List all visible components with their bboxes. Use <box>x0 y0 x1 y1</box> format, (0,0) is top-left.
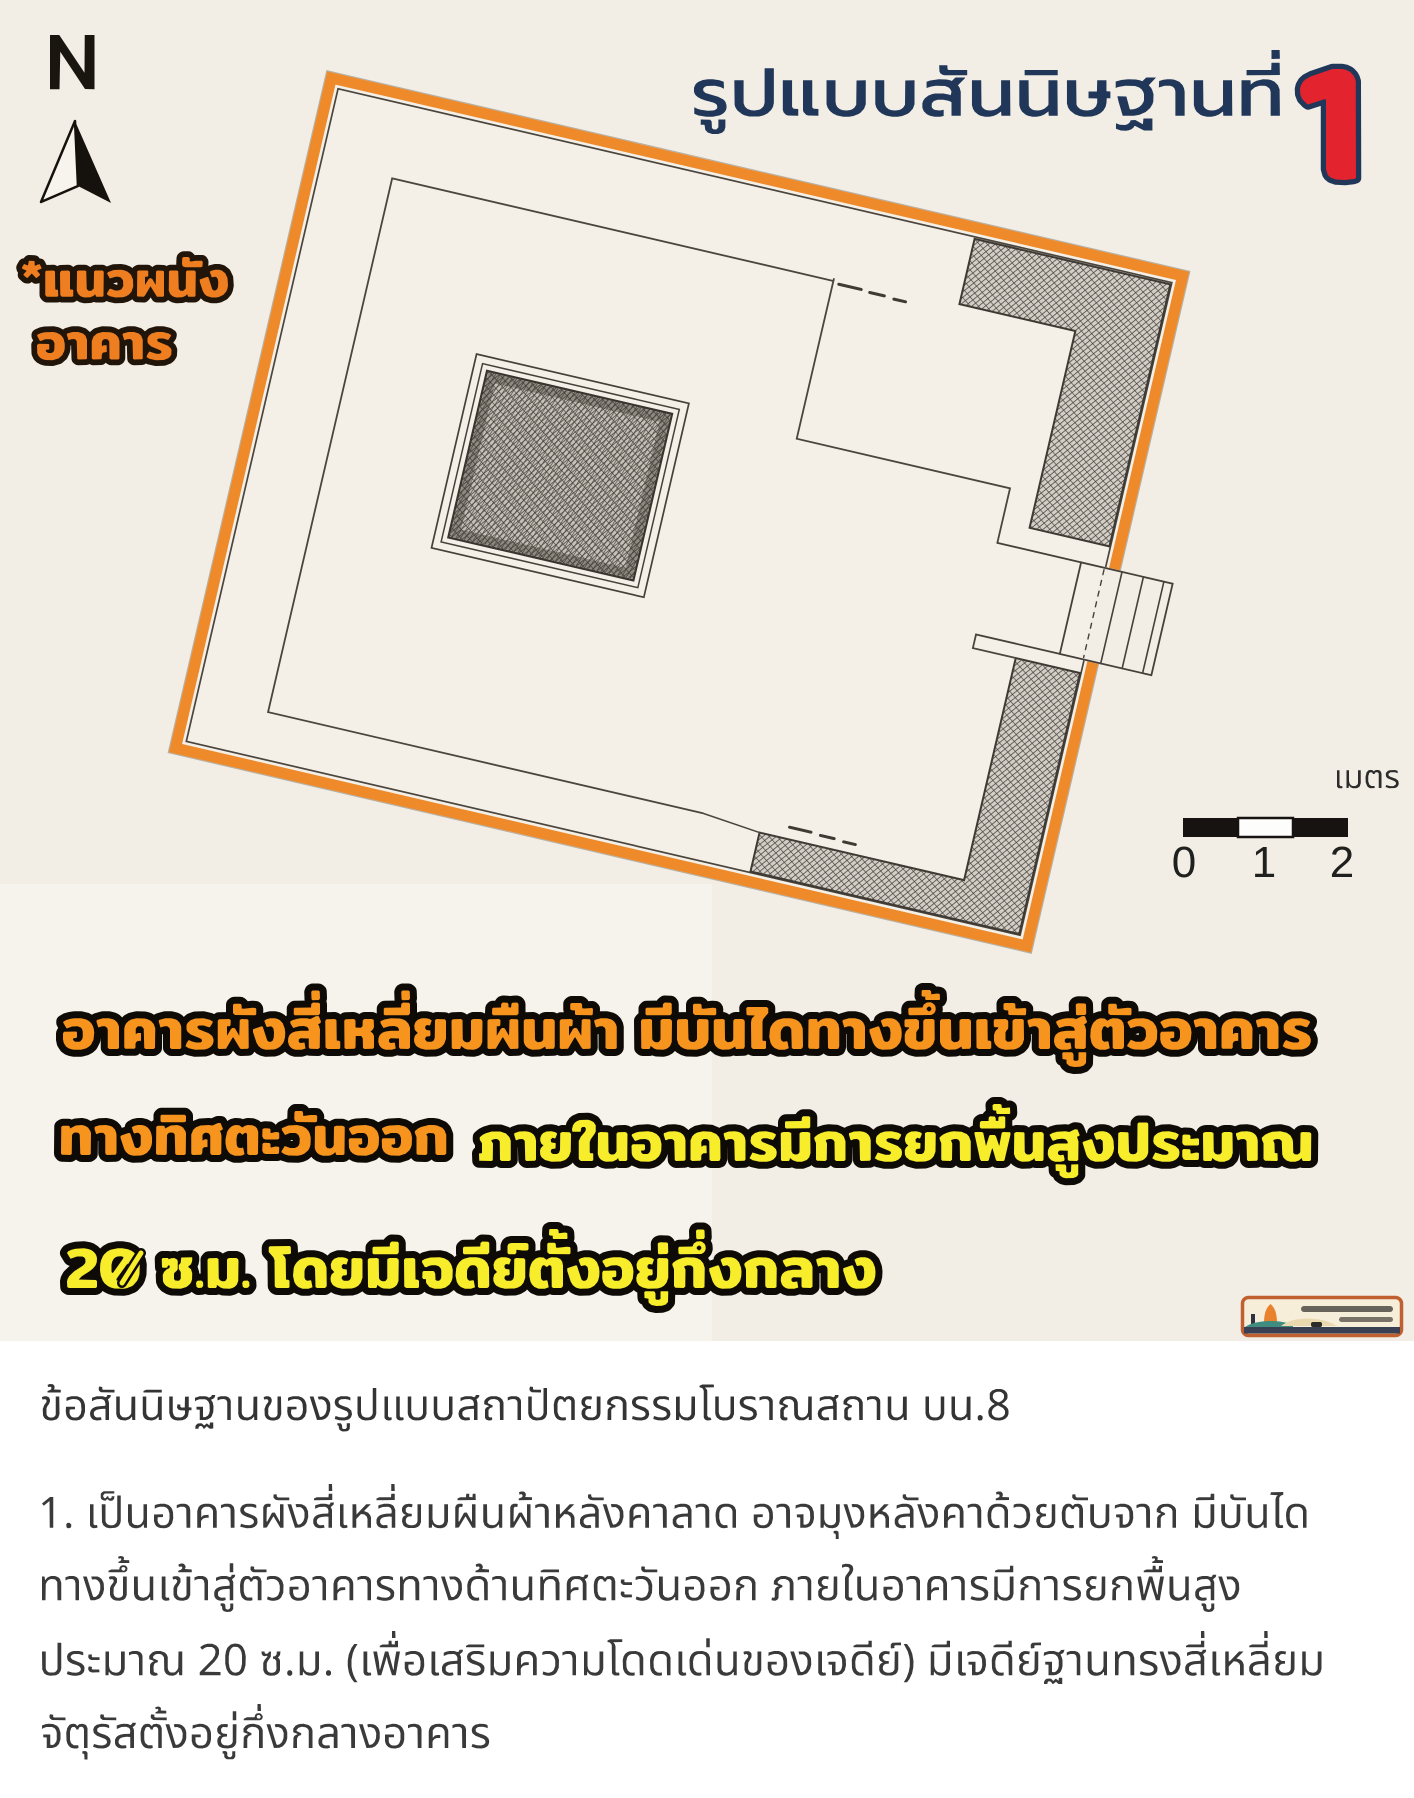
svg-text:2: 2 <box>1330 838 1354 887</box>
svg-text:1: 1 <box>1252 838 1276 887</box>
svg-text:0: 0 <box>1172 838 1196 887</box>
